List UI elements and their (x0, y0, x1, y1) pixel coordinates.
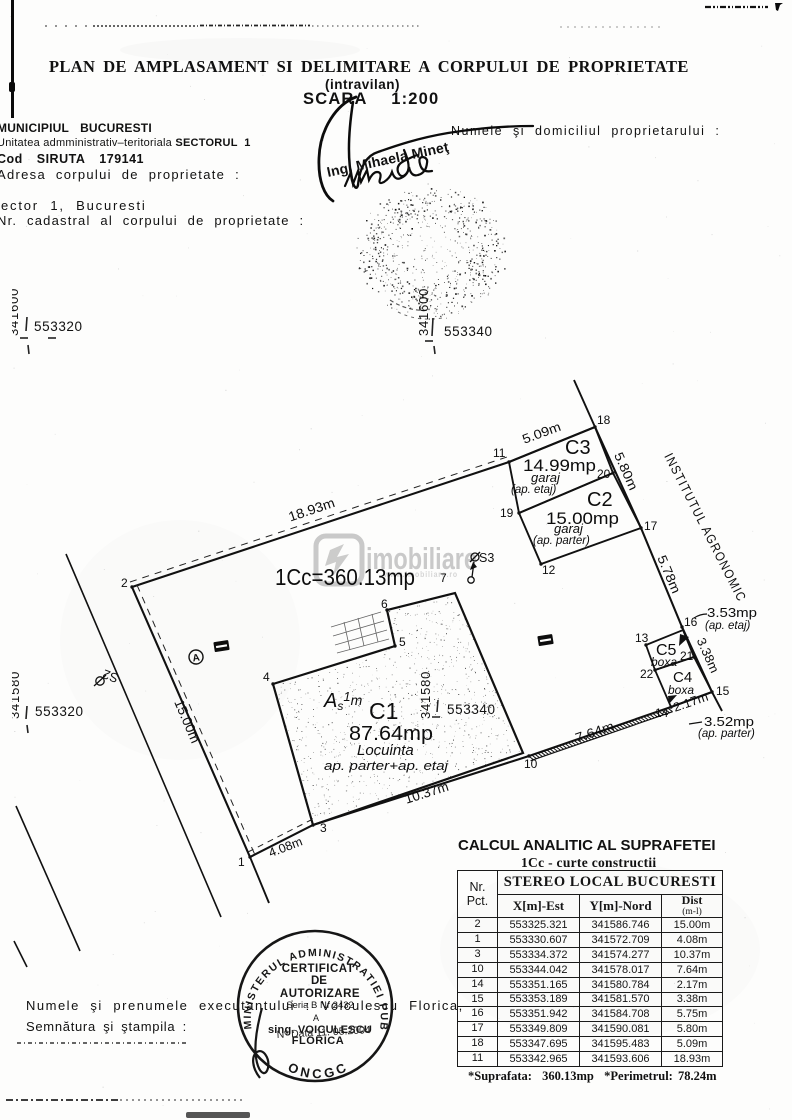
svg-text:AUTORIZARE: AUTORIZARE (280, 988, 360, 1000)
svg-text:CERTIFICAT: CERTIFICAT (282, 963, 355, 975)
svg-text:Seria B Nr 2432: Seria B Nr 2432 (286, 1000, 354, 1011)
svg-text:MINISTERUL ADMINISTRATIEI PUBL: MINISTERUL ADMINISTRATIEI PUBLICE (0, 0, 390, 1032)
svg-text:A: A (313, 1013, 319, 1023)
svg-text:DE: DE (311, 975, 327, 987)
